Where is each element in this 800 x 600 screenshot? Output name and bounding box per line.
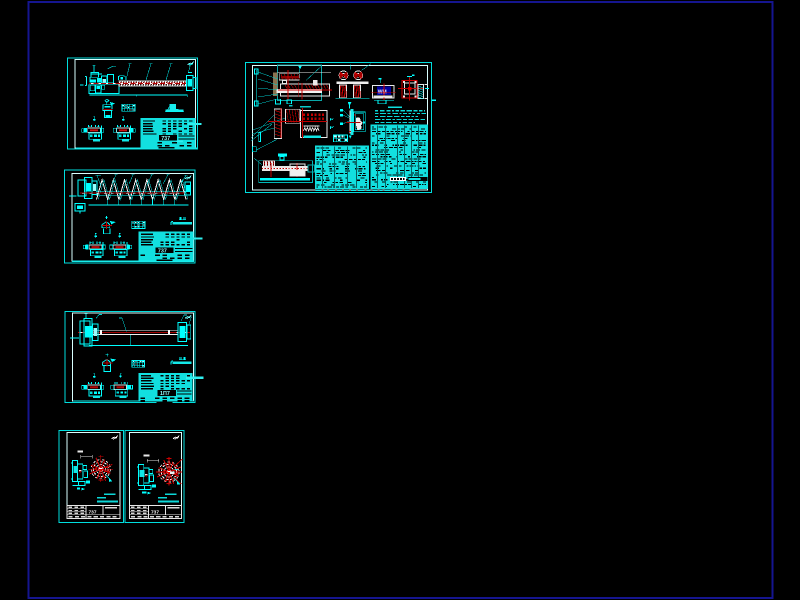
svg-text:737: 737: [89, 509, 97, 515]
svg-text:737: 737: [161, 136, 170, 142]
svg-text:737: 737: [151, 509, 159, 515]
svg-text:1П7: 1П7: [160, 391, 170, 397]
svg-text:WM: WM: [378, 90, 387, 96]
svg-text:737: 737: [158, 248, 167, 254]
